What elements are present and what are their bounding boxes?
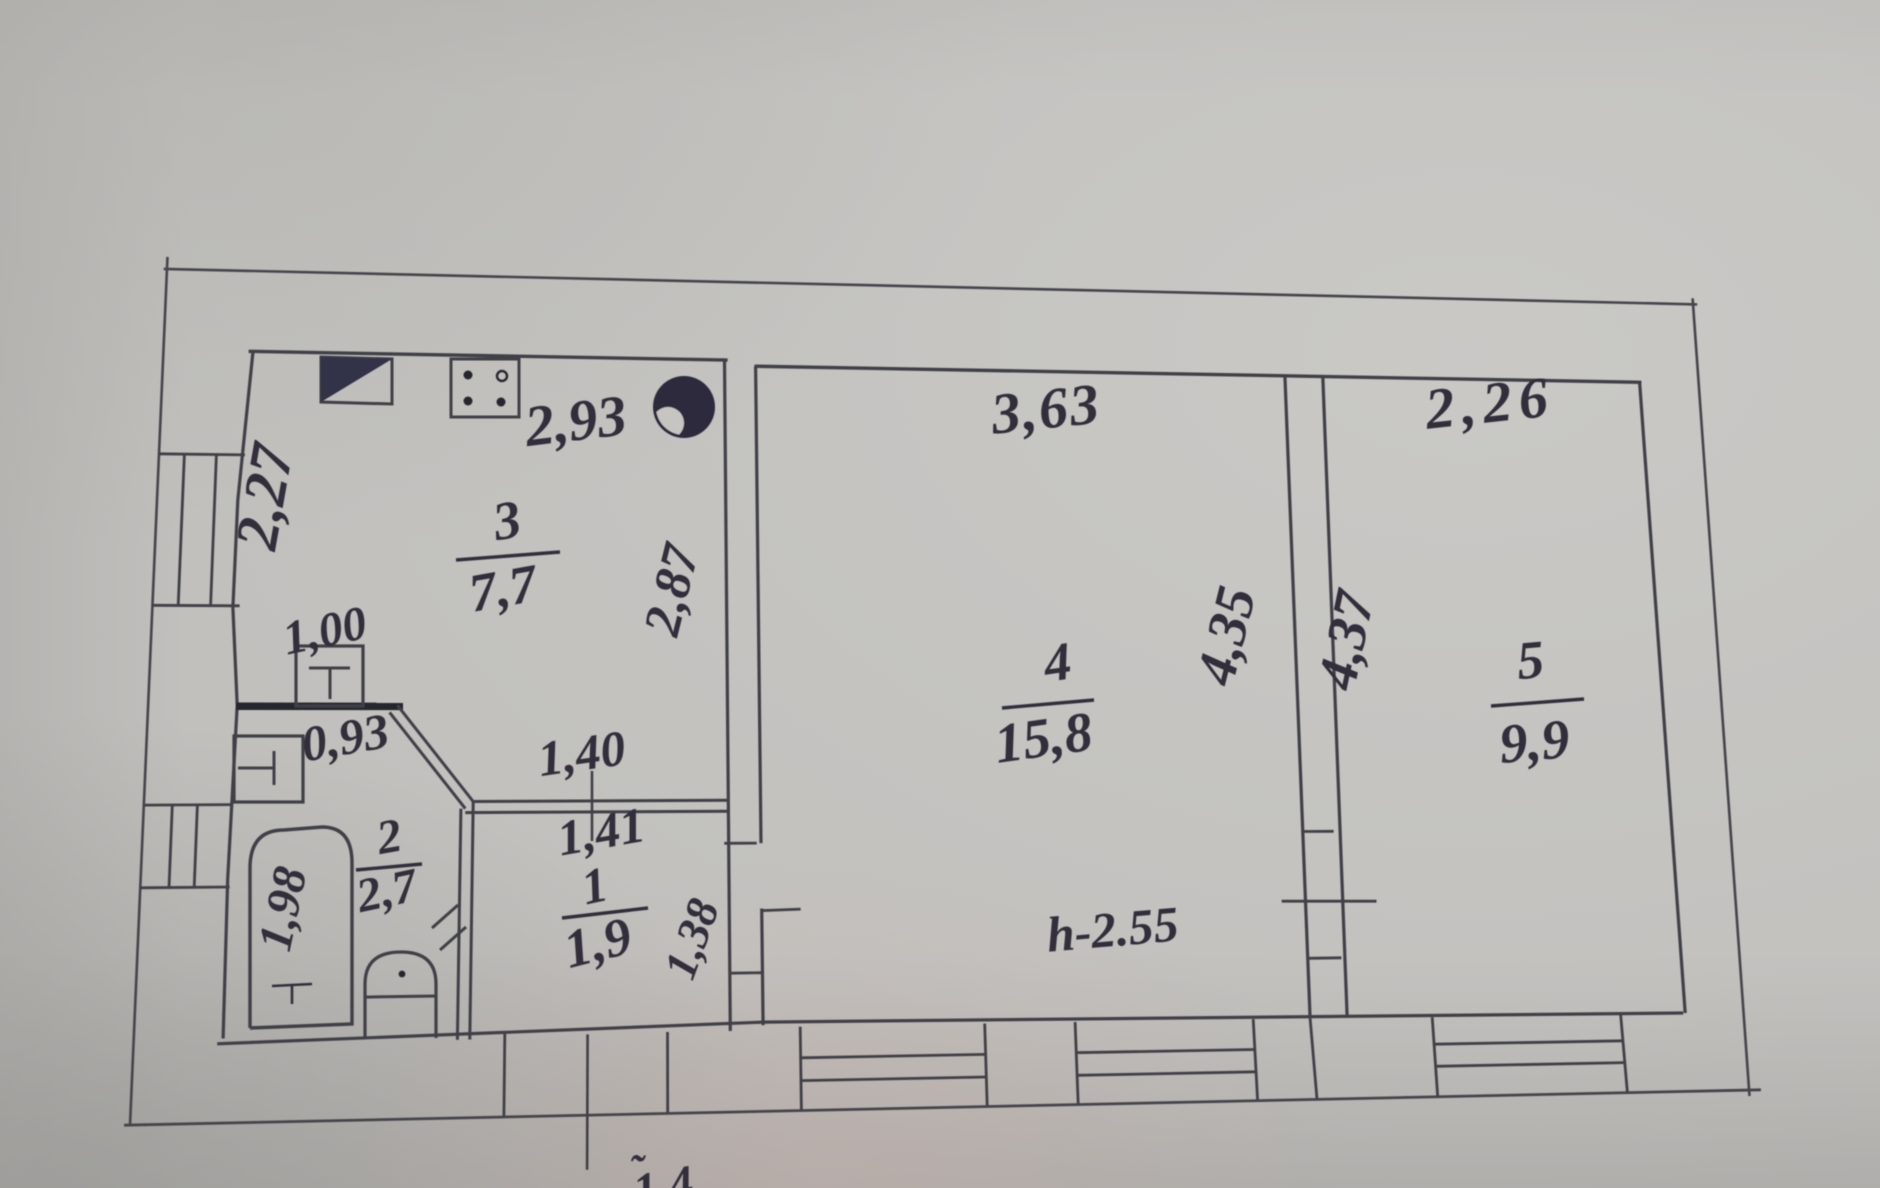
svg-text:5: 5: [1514, 629, 1546, 691]
svg-text:2,93: 2,93: [520, 382, 630, 459]
svg-text:3,63: 3,63: [987, 371, 1104, 447]
svg-text:7,7: 7,7: [464, 553, 543, 624]
svg-text:9,9: 9,9: [1497, 708, 1572, 776]
svg-text:h-2.55: h-2.55: [1044, 895, 1180, 962]
svg-text:2,26: 2,26: [1421, 364, 1558, 442]
